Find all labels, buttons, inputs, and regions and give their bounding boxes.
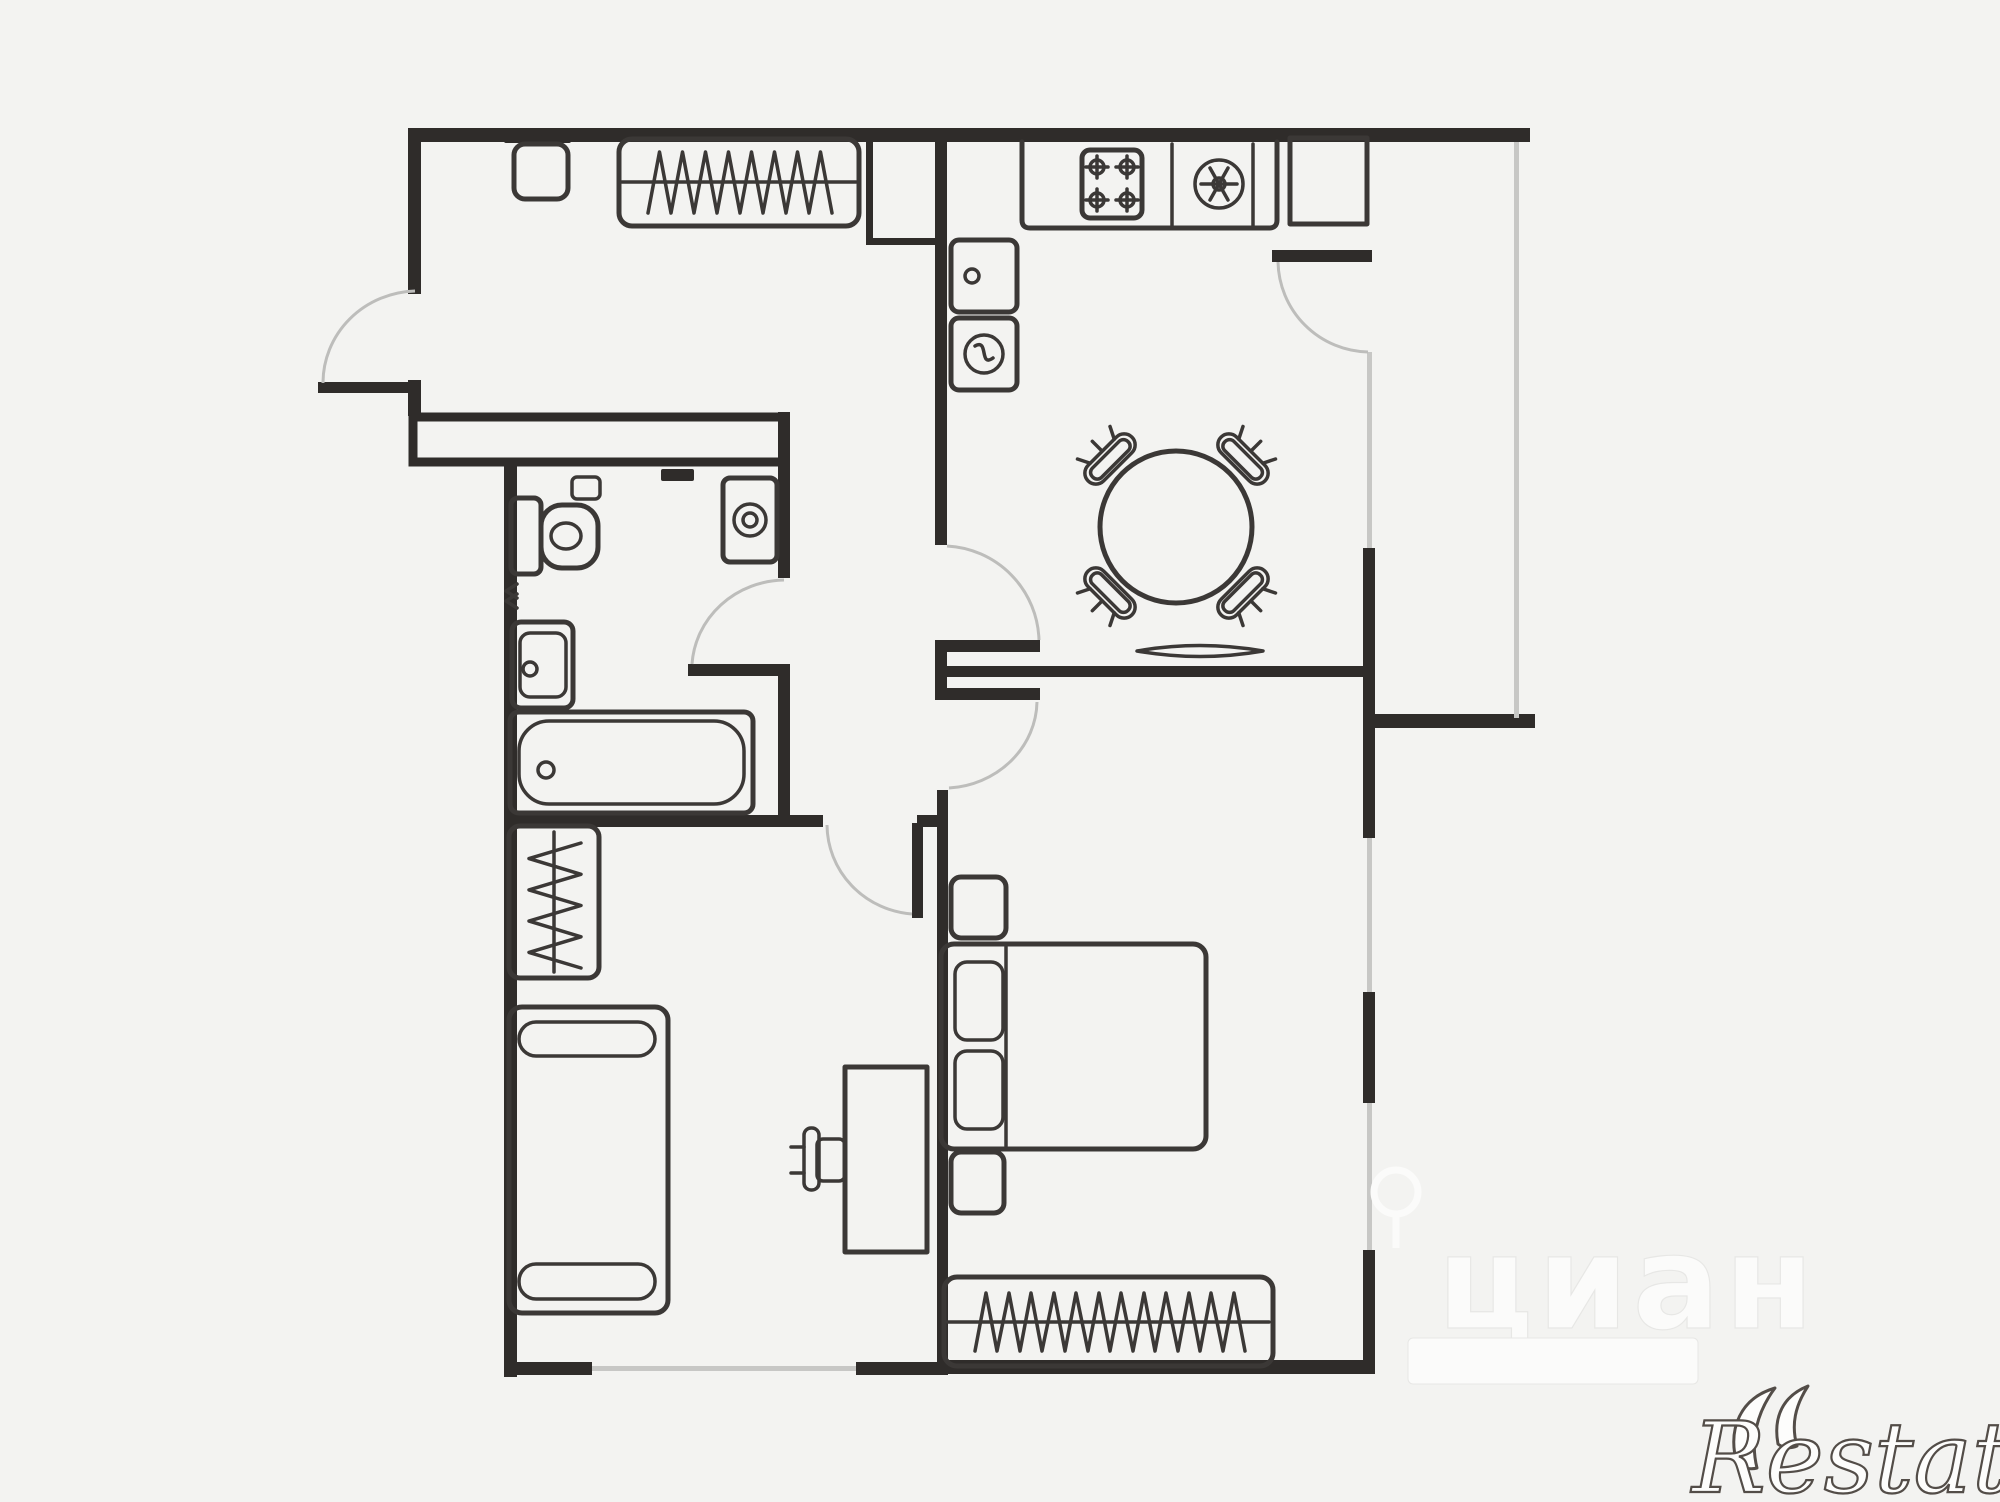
cian-watermark-subtitle-blur bbox=[1408, 1338, 1698, 1384]
balcony-door-leaf bbox=[1272, 250, 1372, 262]
pillow-1 bbox=[955, 962, 1003, 1040]
stove-icon bbox=[1082, 150, 1142, 218]
bedroom-door-arc bbox=[949, 702, 1037, 788]
bathtub bbox=[510, 712, 753, 813]
bathroom-fixtures bbox=[506, 469, 777, 813]
second-room-window bbox=[592, 1366, 856, 1371]
desk-chair bbox=[791, 1128, 845, 1190]
bedroom-furniture bbox=[941, 877, 1273, 1366]
desk-chair-seat bbox=[817, 1139, 845, 1181]
cian-pin-icon bbox=[1374, 1170, 1418, 1248]
kitchen-door-arc bbox=[947, 546, 1039, 640]
refrigerator bbox=[1290, 138, 1367, 224]
dining-chair-nw bbox=[1070, 419, 1139, 488]
floorplan-page: циан Restate bbox=[0, 0, 2000, 1502]
round-dining-table bbox=[1100, 451, 1252, 603]
nightstand-bottom bbox=[951, 1152, 1004, 1213]
bathroom-door-arc bbox=[692, 580, 784, 664]
bedroom-door-leaf bbox=[935, 688, 1040, 700]
washer-drum-icon bbox=[951, 318, 1017, 390]
cian-watermark: циан bbox=[1374, 1170, 1818, 1384]
entrance-door-arc bbox=[323, 291, 415, 383]
sofa-armrest-top bbox=[519, 1022, 655, 1056]
wall-bottom-left-a bbox=[504, 1362, 592, 1375]
sofa bbox=[509, 1007, 668, 1313]
floorplan-drawing: циан Restate bbox=[0, 0, 2000, 1502]
bedroom-wardrobe bbox=[944, 1277, 1273, 1366]
hall-wardrobe bbox=[619, 139, 859, 226]
wall-right-c bbox=[1363, 1250, 1375, 1372]
bathroom-door-leaf bbox=[688, 664, 790, 676]
wall-left-upper bbox=[408, 128, 421, 294]
toilet-paper-holder bbox=[572, 477, 600, 499]
balcony-glazing bbox=[1514, 142, 1519, 718]
cian-watermark-text: циан bbox=[1437, 1207, 1818, 1359]
wall-right-a bbox=[1363, 548, 1375, 838]
sofa-armrest-bottom bbox=[519, 1264, 655, 1299]
double-bed bbox=[941, 944, 1206, 1149]
stove-outline bbox=[1082, 150, 1142, 218]
wall-bathroom-right-a bbox=[778, 412, 790, 578]
desk bbox=[845, 1067, 927, 1252]
second-room-door-leaf bbox=[912, 823, 923, 918]
entry-hall-furniture bbox=[504, 134, 859, 226]
doors bbox=[318, 250, 1372, 918]
toilet bbox=[511, 498, 598, 574]
kitchen-sink-icon bbox=[1195, 160, 1243, 208]
sofa-outline bbox=[509, 1007, 668, 1313]
restate-watermark: Restate bbox=[1690, 1386, 2000, 1502]
dining-chair-ne bbox=[1213, 419, 1282, 488]
balcony-door-arc bbox=[1278, 262, 1368, 352]
walls bbox=[408, 128, 1535, 1377]
dining-chair-se bbox=[1213, 563, 1282, 632]
kitchen-door-leaf bbox=[935, 640, 1040, 652]
vent-shaft-bottom bbox=[866, 238, 936, 245]
toilet-bowl-inner bbox=[551, 523, 581, 549]
bedroom-window-1 bbox=[1367, 838, 1372, 992]
stove-burners bbox=[1086, 156, 1138, 211]
wash-basin bbox=[512, 622, 573, 708]
bed-outline bbox=[941, 944, 1206, 1149]
kitchen-balcony-window bbox=[1367, 352, 1372, 548]
bedroom-window-2 bbox=[1367, 1103, 1372, 1250]
dining-chair-sw bbox=[1070, 563, 1139, 632]
washing-machine bbox=[723, 478, 777, 562]
windows bbox=[592, 142, 1519, 1371]
left-wardrobe bbox=[509, 826, 599, 978]
wall-band-hall-bathroom bbox=[413, 417, 784, 462]
nightstand-top bbox=[951, 877, 1006, 938]
restate-watermark-text: Restate bbox=[1690, 1402, 2000, 1502]
wall-divider-upper bbox=[935, 128, 947, 545]
second-room-furniture bbox=[509, 826, 927, 1313]
wall-right-b bbox=[1363, 992, 1375, 1103]
wall-bathroom-right-b bbox=[778, 668, 790, 827]
kitchen-counter bbox=[1022, 142, 1277, 228]
vent-shaft-left bbox=[866, 142, 873, 245]
bathroom-shelf-bar bbox=[661, 469, 694, 481]
wall-bedroom-top bbox=[935, 666, 1372, 677]
radiator-lens bbox=[1137, 646, 1263, 657]
second-room-door-arc bbox=[827, 825, 912, 914]
pillow-2 bbox=[955, 1051, 1003, 1129]
wall-bottom-left-b bbox=[856, 1362, 948, 1375]
wall-balcony-bottom bbox=[1363, 714, 1535, 728]
dishwasher-icon bbox=[951, 240, 1017, 312]
entry-wall-cabinet bbox=[514, 144, 568, 199]
entrance-door-leaf bbox=[318, 382, 415, 393]
